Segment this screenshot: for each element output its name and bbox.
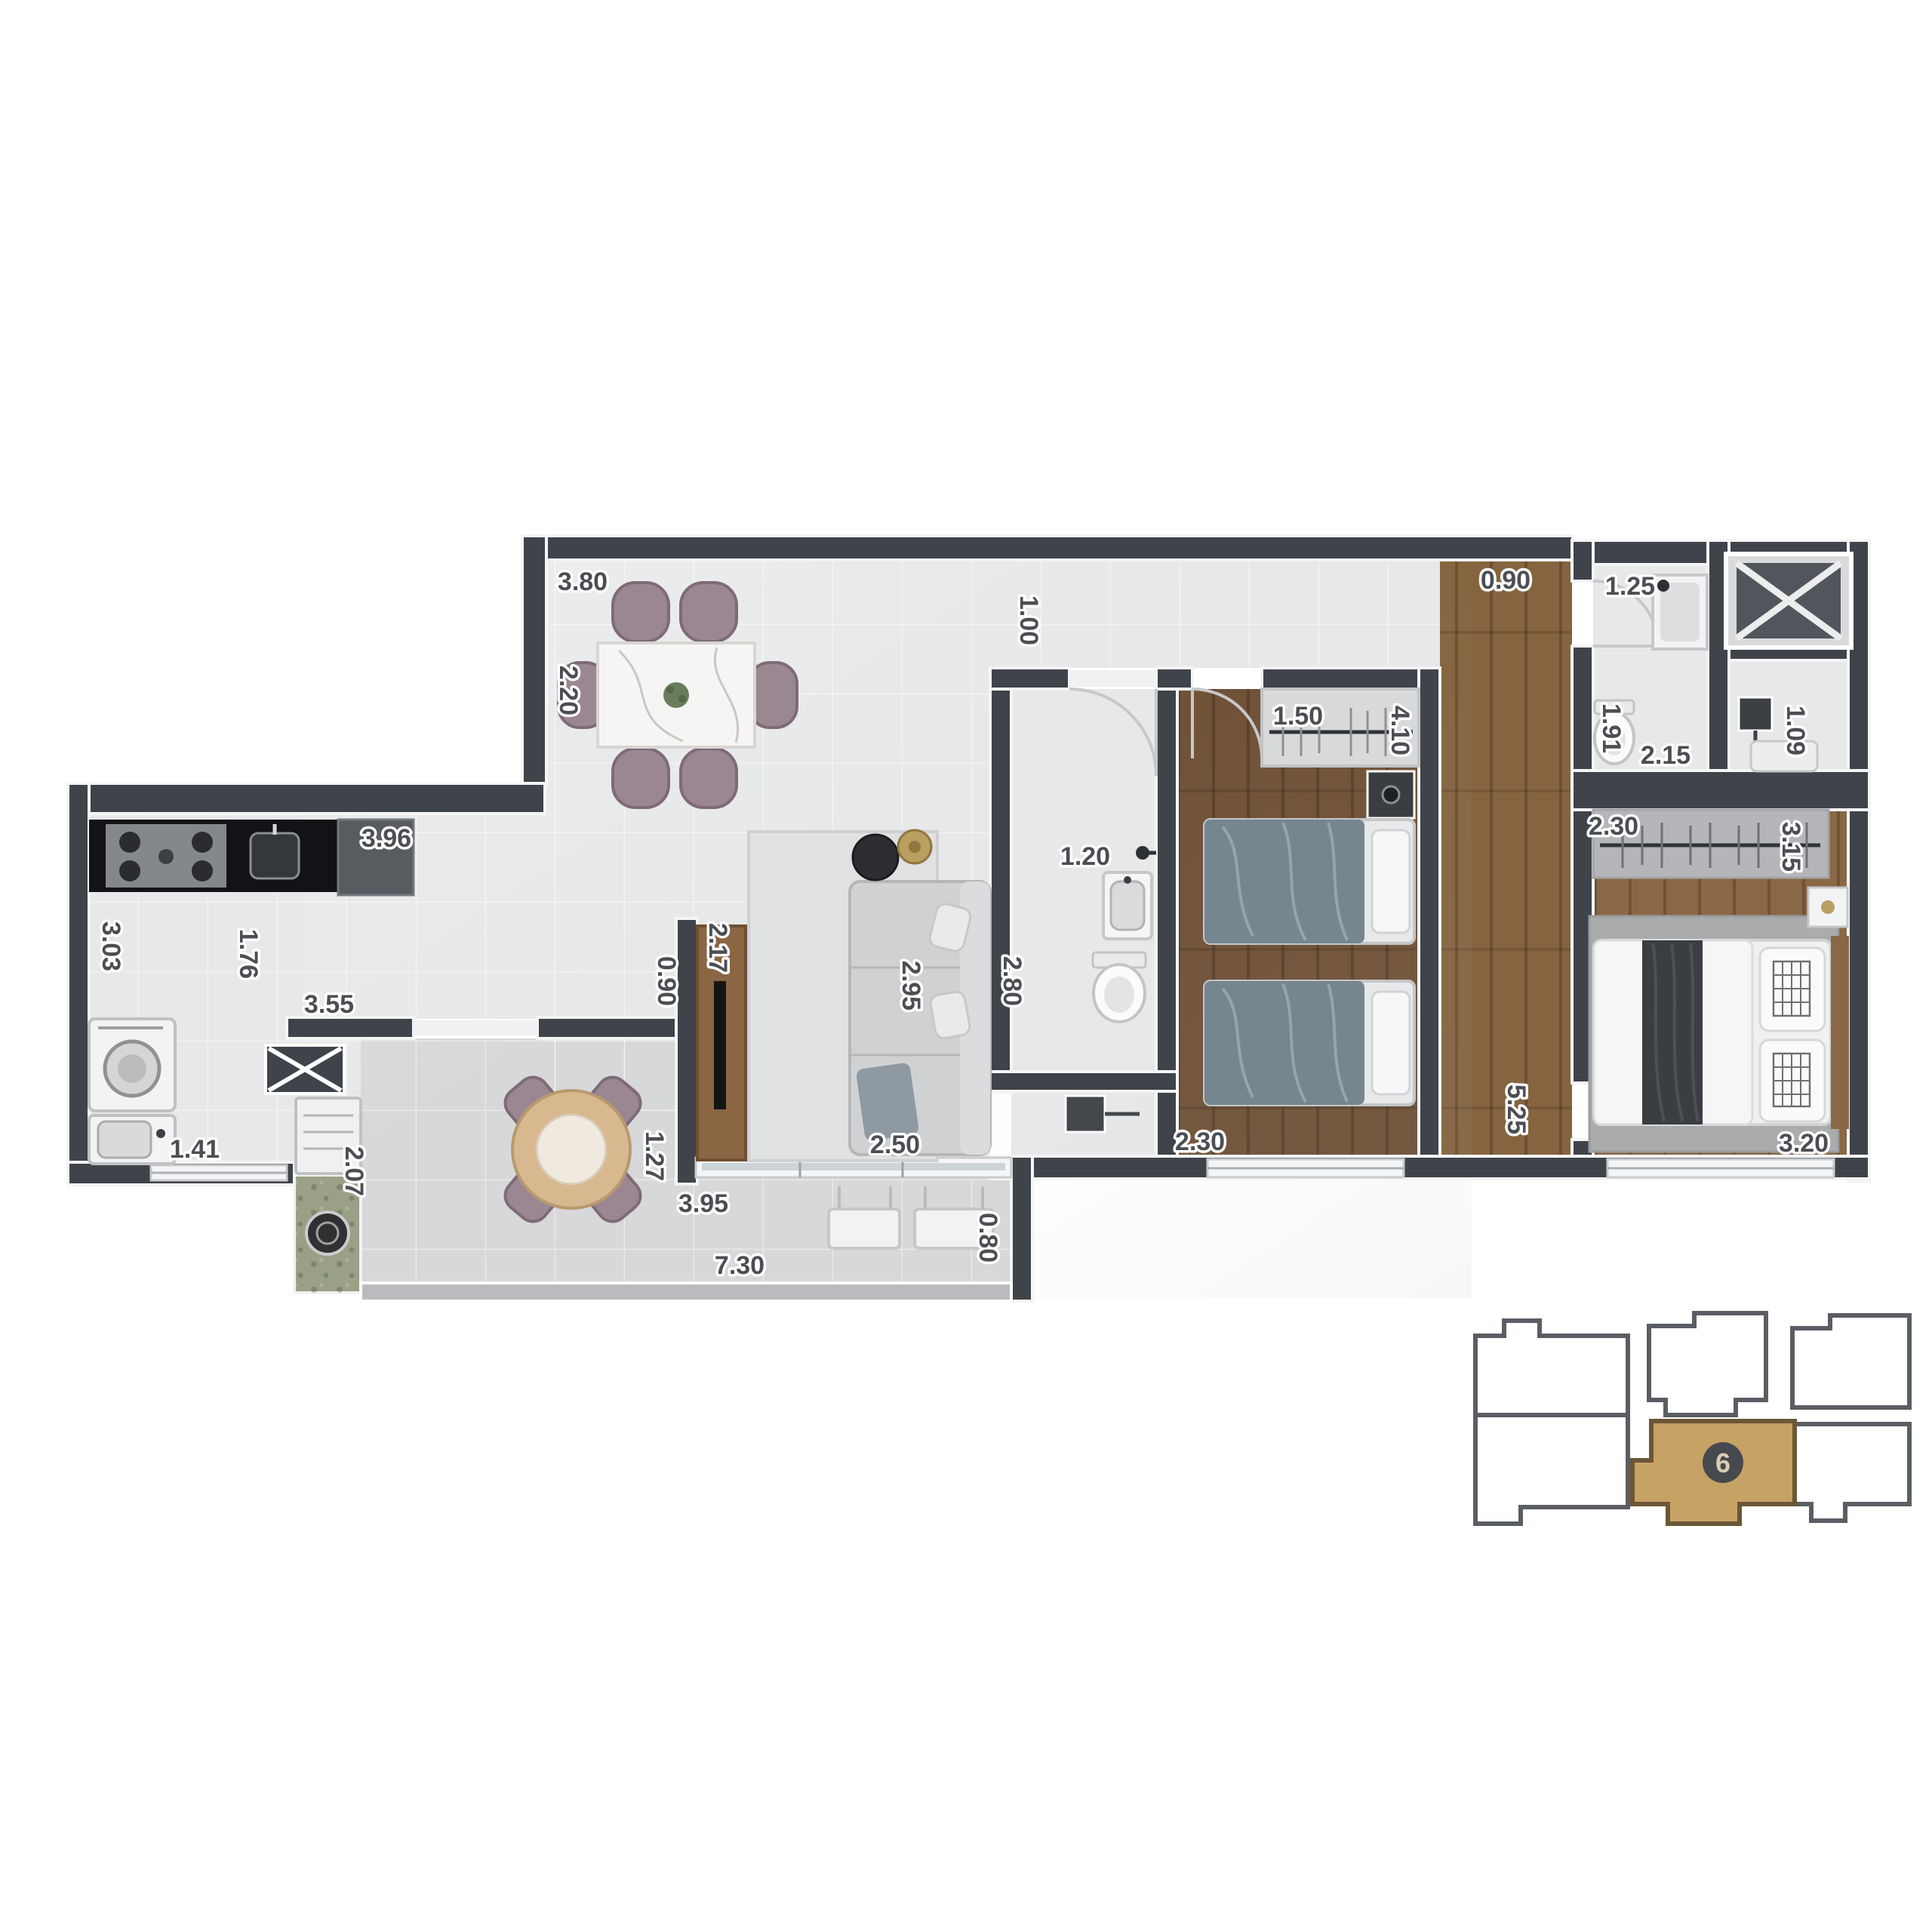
wall-corridor-right-mid bbox=[1572, 646, 1593, 789]
wall-bathroom1-bottom bbox=[990, 1072, 1177, 1091]
dim-kitchen-length: 3.55 bbox=[304, 990, 354, 1019]
dim-master-depth: 3.15 bbox=[1777, 822, 1805, 872]
single-bed-2 bbox=[1204, 981, 1414, 1105]
double-bed bbox=[1594, 936, 1849, 1129]
laundry-tank bbox=[89, 1115, 175, 1164]
wall-bathroom1-left bbox=[990, 689, 1011, 1093]
dim-dining-width: 3.80 bbox=[558, 568, 608, 596]
dim-service-nook: 1.09 bbox=[1781, 706, 1810, 755]
master-bedroom bbox=[1589, 810, 1849, 1152]
threshold-balcony-door bbox=[414, 1020, 537, 1035]
floor-plan-canvas: 3.80 2.20 1.00 0.90 1.25 1.91 2.15 1.09 … bbox=[0, 0, 1932, 1932]
table-plant bbox=[663, 682, 689, 708]
wall-block-divider bbox=[1572, 771, 1869, 810]
wall-bedroom1-top-b bbox=[1262, 668, 1440, 689]
dim-kitchen-depth: 3.03 bbox=[97, 921, 125, 971]
tv bbox=[714, 981, 726, 1109]
utility-shaft bbox=[266, 1045, 344, 1094]
shower bbox=[1653, 575, 1707, 649]
dim-balcony-table: 1.27 bbox=[640, 1131, 669, 1181]
toilet bbox=[1093, 952, 1146, 1022]
floor-plan-page: 3.80 2.20 1.00 0.90 1.25 1.91 2.15 1.09 … bbox=[0, 0, 1932, 1932]
dim-vertical-garden: 2.07 bbox=[340, 1146, 368, 1196]
wall-kitchen-bottom bbox=[287, 1017, 414, 1038]
dim-dining-depth: 2.20 bbox=[554, 666, 583, 715]
wall-balcony-right bbox=[1011, 1156, 1032, 1301]
wall-dining-left bbox=[522, 536, 546, 786]
dim-hall-width: 1.00 bbox=[1014, 595, 1043, 645]
dim-corridor-length: 5.25 bbox=[1502, 1084, 1531, 1134]
dim-bathroom1-width: 1.20 bbox=[1060, 842, 1110, 871]
window-master bbox=[1607, 1159, 1834, 1177]
dim-master-wardrobe: 2.30 bbox=[1589, 812, 1638, 841]
dim-master-width: 3.20 bbox=[1779, 1129, 1829, 1158]
dim-sofa-wall: 2.95 bbox=[897, 961, 925, 1011]
window-laundry bbox=[151, 1165, 287, 1180]
wall-bedroom1-right bbox=[1419, 668, 1440, 1156]
dim-bathroom2-length: 2.15 bbox=[1641, 741, 1690, 770]
round-table-set bbox=[499, 1071, 646, 1227]
dim-bedroom1-width: 2.30 bbox=[1175, 1128, 1225, 1156]
dim-balcony-depth: 0.80 bbox=[974, 1213, 1002, 1263]
window-bedroom1 bbox=[1207, 1159, 1404, 1177]
dim-kitchen-width: 1.76 bbox=[234, 929, 263, 979]
balcony-parapet bbox=[361, 1283, 1011, 1301]
dim-bathroom1-depth: 2.80 bbox=[998, 956, 1026, 1006]
kitchen-sink bbox=[251, 833, 299, 878]
threshold-bathroom1-door bbox=[1069, 670, 1156, 687]
sofa bbox=[850, 881, 990, 1155]
wall-bedroom1-top-a bbox=[1156, 668, 1192, 689]
dim-living-opening: 2.50 bbox=[870, 1131, 920, 1159]
wall-outer-left bbox=[68, 783, 89, 1183]
wall-living-bottom-left bbox=[537, 1017, 697, 1038]
headboard bbox=[1831, 936, 1849, 1129]
wall-kitchen-top bbox=[68, 783, 545, 814]
keyplan-unit-left-bottom bbox=[1475, 1415, 1628, 1524]
keyplan-unit-left-top bbox=[1475, 1321, 1628, 1415]
keyplan-unit-mid-top bbox=[1649, 1313, 1766, 1415]
wall-top-main bbox=[522, 536, 1573, 560]
dim-balcony-length: 7.30 bbox=[715, 1251, 764, 1280]
dim-bedroom1-wardrobe: 1.50 bbox=[1273, 702, 1323, 731]
keyplan-unit-number: 6 bbox=[1715, 1447, 1730, 1478]
elevator-shaft bbox=[1726, 554, 1851, 648]
side-table-dark bbox=[853, 835, 898, 880]
washing-machine bbox=[89, 1019, 175, 1111]
dim-balcony-left-length: 3.95 bbox=[678, 1189, 728, 1218]
dim-kitchen-counter: 3.96 bbox=[361, 824, 411, 853]
bedroom1-nightstand bbox=[1367, 771, 1414, 818]
balcony-bench-1 bbox=[829, 1209, 900, 1248]
dim-corridor-entry: 0.90 bbox=[1481, 566, 1531, 595]
key-plan: 6 bbox=[1475, 1313, 1909, 1524]
dim-tv-console: 2.17 bbox=[703, 923, 732, 973]
wall-hall-bath bbox=[990, 668, 1069, 689]
wall-corridor-right-top bbox=[1572, 540, 1593, 581]
single-bed-1 bbox=[1204, 820, 1414, 943]
dim-bathroom2-width: 1.25 bbox=[1605, 572, 1655, 601]
master-nightstand bbox=[1808, 888, 1847, 927]
keyplan-unit-right-top bbox=[1792, 1315, 1909, 1407]
dim-bedroom1-depth: 4.10 bbox=[1386, 706, 1414, 755]
dim-laundry-width: 1.41 bbox=[170, 1135, 220, 1164]
keyplan-unit-right-bottom bbox=[1792, 1424, 1909, 1521]
dim-bathroom2-depth: 1.91 bbox=[1597, 703, 1626, 753]
dim-living-passage: 0.90 bbox=[652, 956, 681, 1006]
